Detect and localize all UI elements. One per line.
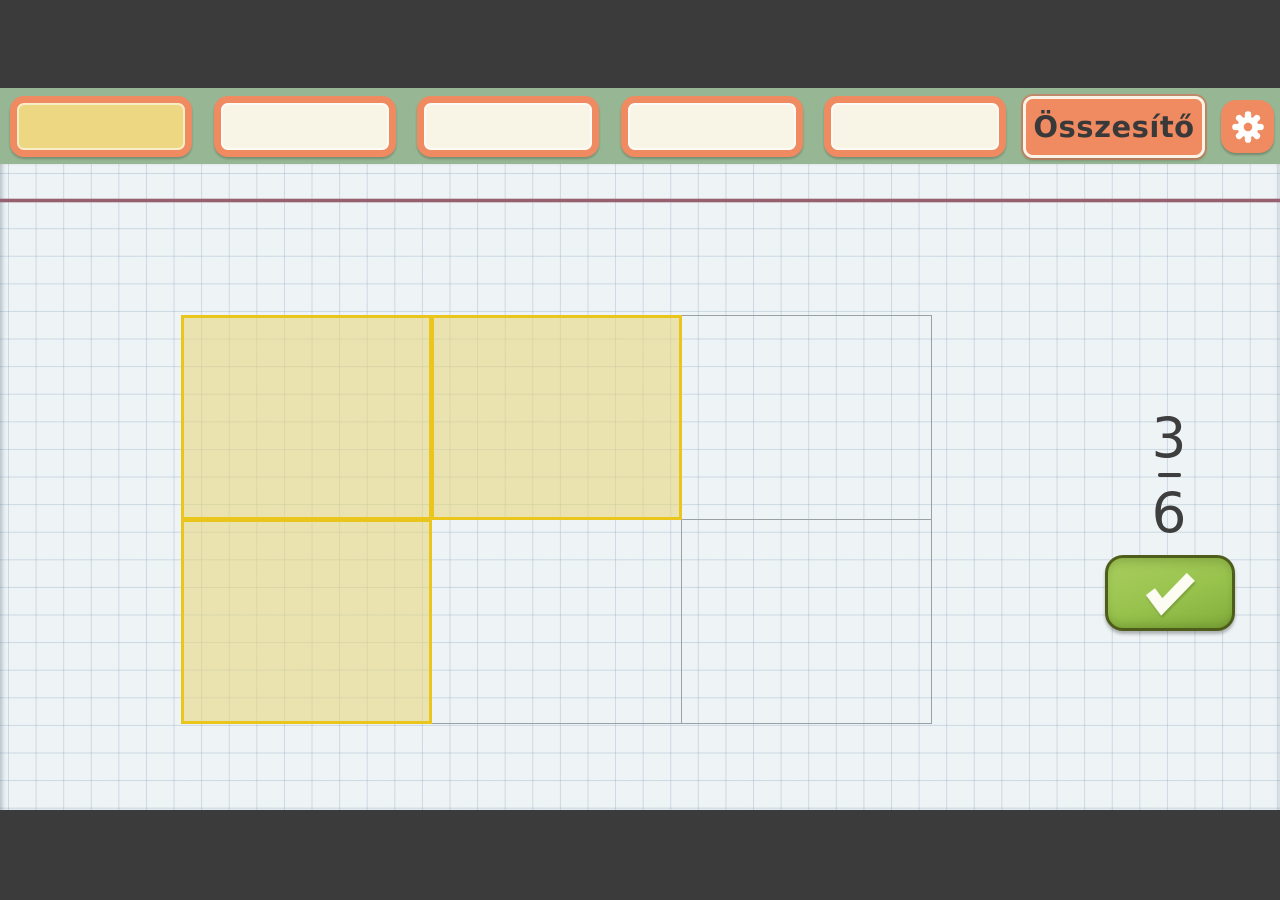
worksheet-paper: 3 6 (0, 164, 1280, 810)
tab-1[interactable] (10, 96, 192, 157)
tab-5[interactable] (824, 96, 1006, 157)
summary-button[interactable]: Összesítő (1023, 96, 1205, 158)
fraction-display: 3 6 (1134, 411, 1204, 541)
tab-4[interactable] (621, 96, 803, 157)
fraction-bar (1158, 473, 1181, 477)
check-button[interactable] (1105, 555, 1235, 631)
grid-cell-shaded[interactable] (181, 519, 432, 724)
top-bar (0, 0, 1280, 88)
grid-cell-unshaded[interactable] (681, 315, 932, 520)
app-window: Összesítő (0, 0, 1280, 900)
grid-cell-unshaded[interactable] (681, 519, 932, 724)
grid-cell-shaded[interactable] (431, 315, 682, 520)
fraction-grid (181, 315, 932, 724)
grid-cell-shaded[interactable] (181, 315, 432, 520)
check-icon (1139, 569, 1201, 617)
fraction-numerator: 3 (1134, 411, 1204, 466)
settings-button[interactable] (1221, 100, 1274, 153)
gear-icon (1230, 109, 1266, 145)
bottom-bar (0, 810, 1280, 900)
tab-3[interactable] (417, 96, 599, 157)
margin-line (0, 199, 1280, 202)
fraction-denominator: 6 (1134, 486, 1204, 541)
tab-2[interactable] (214, 96, 396, 157)
grid-cell-unshaded[interactable] (431, 519, 682, 724)
toolbar: Összesítő (0, 88, 1280, 164)
